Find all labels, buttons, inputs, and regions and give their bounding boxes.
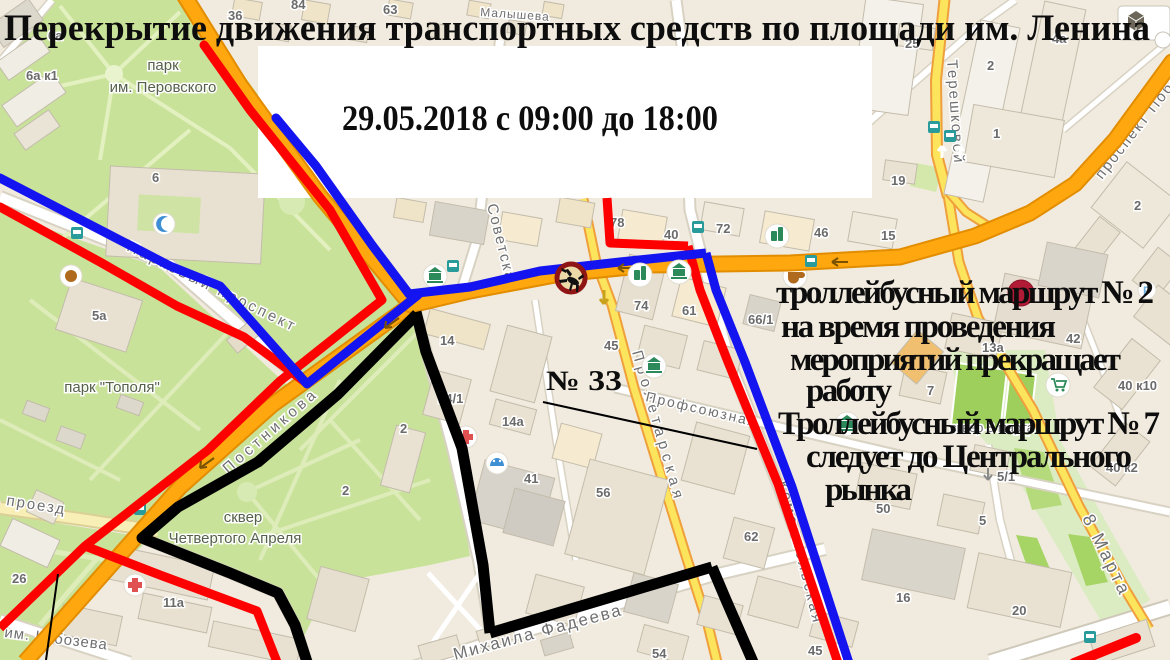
svg-text:19: 19 (891, 173, 905, 188)
svg-text:45: 45 (604, 338, 618, 353)
svg-text:Троллейбусный маршрут № 7: Троллейбусный маршрут № 7 (778, 406, 1160, 442)
svg-text:61: 61 (682, 303, 696, 318)
svg-text:46: 46 (814, 225, 828, 240)
svg-text:Четвертого Апреля: Четвертого Апреля (169, 530, 302, 547)
svg-text:72: 72 (716, 221, 730, 236)
svg-text:на время проведения: на время проведения (781, 309, 1056, 345)
svg-text:рынка: рынка (825, 472, 912, 508)
svg-text:сквер: сквер (224, 509, 263, 526)
svg-text:7: 7 (927, 383, 934, 398)
svg-text:№ 33: № 33 (546, 366, 622, 397)
svg-text:66/1: 66/1 (748, 312, 773, 327)
svg-text:16: 16 (896, 590, 910, 605)
svg-text:6а к1: 6а к1 (26, 68, 58, 83)
svg-text:парк "Тополя": парк "Тополя" (64, 379, 160, 396)
svg-text:5а: 5а (92, 308, 107, 323)
svg-text:14: 14 (440, 333, 455, 348)
svg-text:41: 41 (524, 471, 538, 486)
svg-text:5: 5 (979, 513, 986, 528)
svg-text:45: 45 (808, 643, 822, 658)
svg-text:Перекрытие движения транспортн: Перекрытие движения транспортных средств… (4, 8, 1150, 49)
svg-text:2: 2 (1134, 198, 1141, 213)
svg-text:6: 6 (152, 170, 159, 185)
svg-text:56: 56 (596, 485, 610, 500)
svg-text:11а: 11а (163, 595, 185, 610)
svg-text:2: 2 (400, 421, 407, 436)
svg-text:26: 26 (12, 571, 26, 586)
svg-text:им. Перовского: им. Перовского (110, 79, 217, 96)
svg-text:следует до Центрального: следует до Центрального (806, 439, 1132, 475)
svg-text:работу: работу (806, 373, 893, 409)
svg-text:20: 20 (1012, 603, 1026, 618)
svg-text:2: 2 (987, 58, 994, 73)
svg-text:парк: парк (147, 57, 179, 74)
svg-text:62: 62 (744, 529, 758, 544)
svg-text:1: 1 (993, 126, 1000, 141)
svg-text:74: 74 (634, 298, 649, 313)
svg-text:14а: 14а (502, 414, 524, 429)
svg-text:троллейбусный маршрут № 2: троллейбусный маршрут № 2 (776, 275, 1154, 311)
svg-text:2: 2 (342, 483, 349, 498)
svg-text:54: 54 (652, 646, 667, 660)
svg-text:15: 15 (881, 228, 895, 243)
svg-text:40 к10: 40 к10 (1118, 378, 1157, 393)
svg-text:40: 40 (664, 227, 678, 242)
svg-text:29.05.2018 с 09:00 до 18:00: 29.05.2018 с 09:00 до 18:00 (342, 98, 718, 138)
